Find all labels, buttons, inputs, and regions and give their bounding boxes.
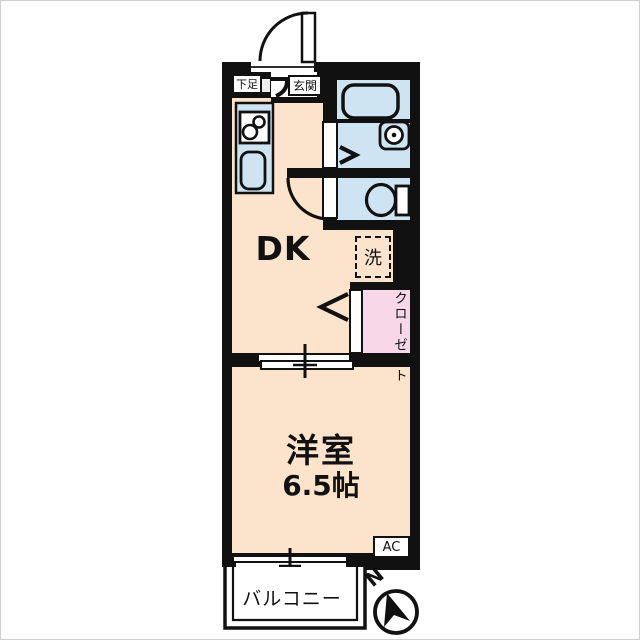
toilet-tank-icon: [396, 186, 409, 215]
entrance-door-leaf: [302, 13, 315, 62]
closet-label: クローゼット: [362, 291, 410, 353]
kitchen-sink-icon: [241, 152, 265, 189]
bedroom-size-label: 6.5帖: [240, 464, 402, 504]
entrance-label: 玄関: [288, 75, 322, 96]
bathroom-door-opening: [323, 122, 337, 168]
balcony-label: バルコニー: [237, 584, 347, 611]
genkan-step: [271, 98, 323, 103]
closet-door: [350, 290, 362, 353]
floor-plan-graphics: [0, 0, 640, 640]
washbasin-drain-icon: [392, 133, 397, 138]
toilet-door-opening: [323, 177, 337, 218]
ac-unit-label: AC: [373, 536, 410, 558]
toilet-bowl-icon: [367, 185, 396, 216]
bath-toilet-wall: [287, 168, 420, 178]
shoe-cabinet-label: 下足: [232, 74, 262, 94]
dk-room-label: DK: [242, 229, 324, 268]
stove-burner-icon: [254, 117, 265, 128]
dk-floor-lower: [232, 282, 350, 353]
bathtub-icon: [343, 85, 398, 118]
washing-machine-label: 洗: [355, 236, 391, 278]
floor-plan: 下足 玄関 DK 洗 クローゼット 洋室 6.5帖 AC バルコニー N: [0, 0, 640, 640]
